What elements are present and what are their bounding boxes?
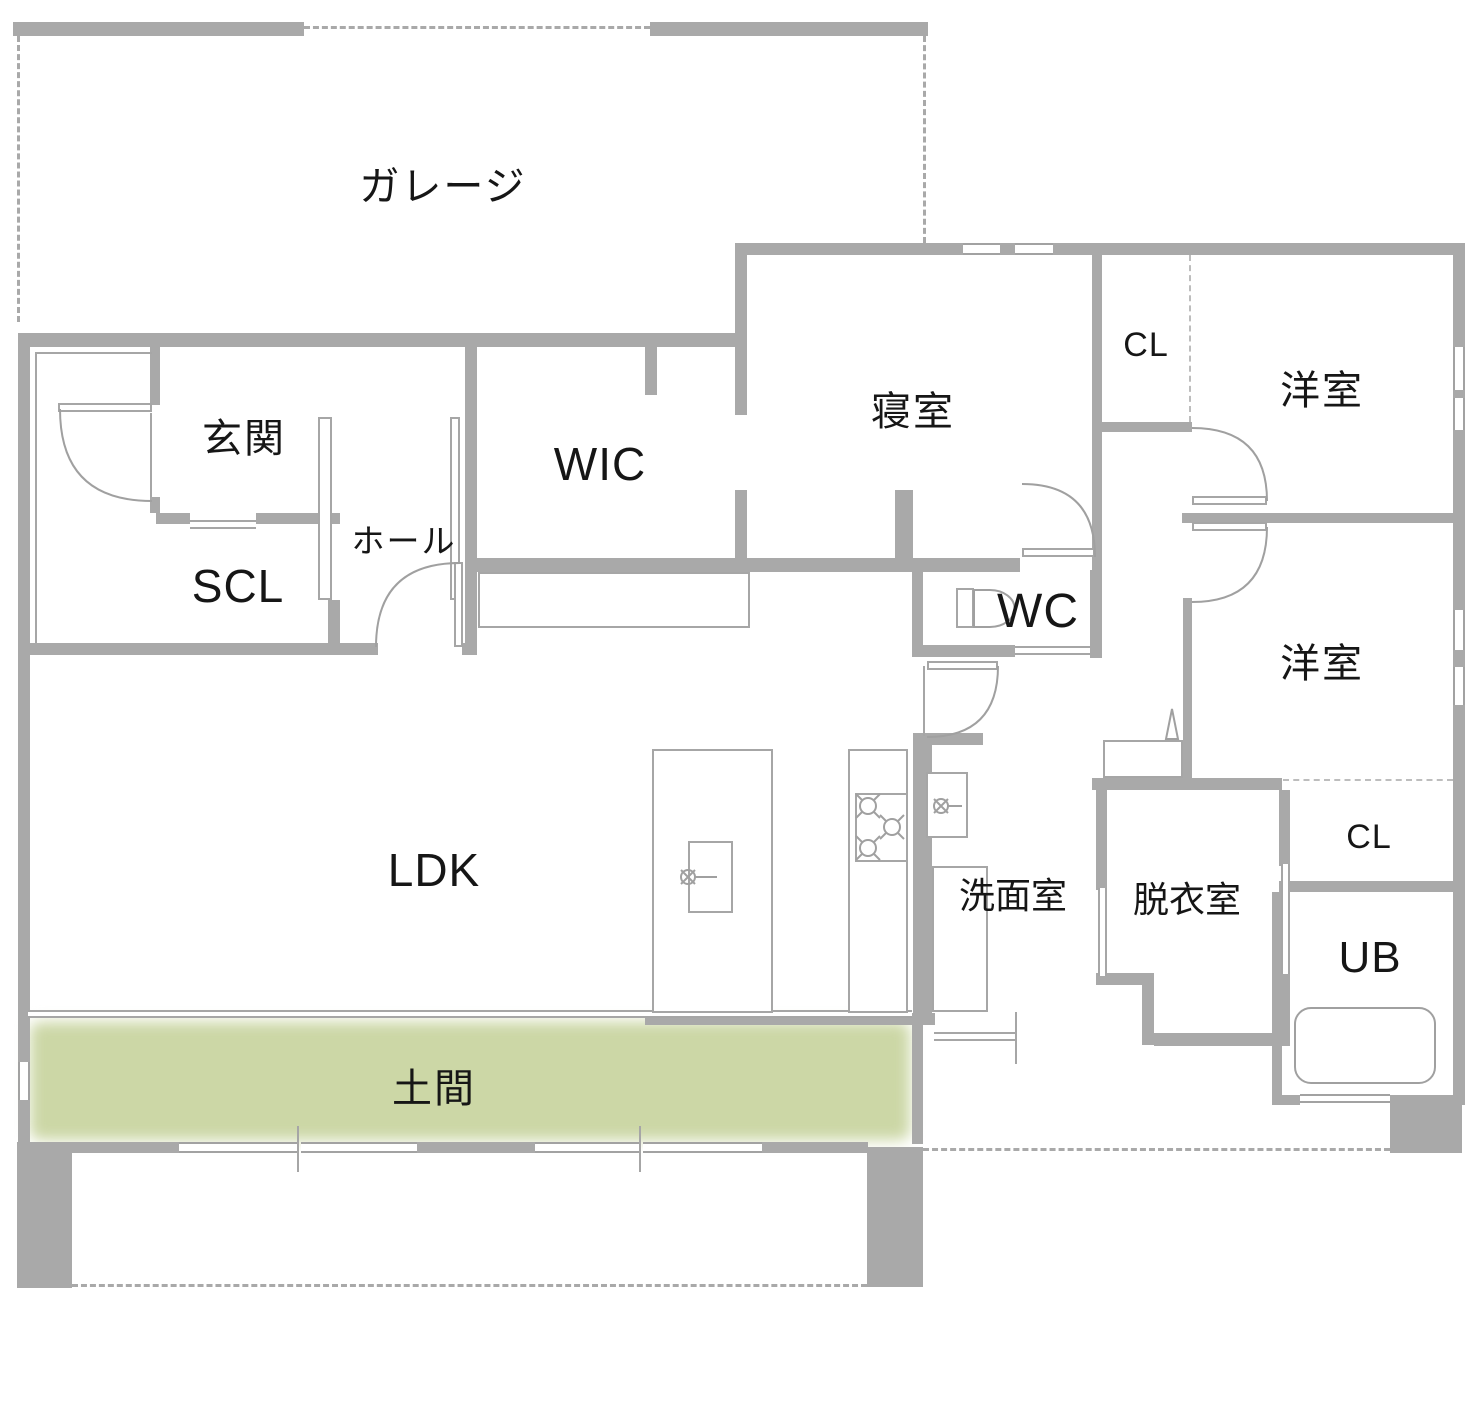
ldk-doma-opening-line: [28, 1010, 912, 1018]
wall: [735, 255, 747, 415]
toilet-tank: [956, 588, 974, 628]
western-room-upper-door-leaf: [1192, 496, 1267, 505]
wall: [1096, 790, 1107, 890]
window: [963, 243, 1000, 255]
window-mullion: [639, 1126, 641, 1172]
wall: [735, 243, 1465, 255]
wall: [912, 1025, 923, 1144]
room-label-garage: ガレージ: [359, 167, 526, 207]
room-label-wic: WIC: [554, 441, 646, 487]
kitchen-back-counter: [478, 572, 750, 628]
wall: [1390, 1095, 1462, 1153]
wall: [156, 513, 190, 524]
sliding-door-wc: [1015, 646, 1090, 655]
wall: [1142, 985, 1154, 1045]
sliding-door-dressing: [1098, 888, 1107, 976]
room-label-western-room-middle: 洋室: [1280, 644, 1364, 684]
sliding-door-doma: [934, 1032, 1016, 1041]
door-arc-icon: [60, 409, 152, 501]
symbols-layer: [0, 0, 1476, 1417]
terrace-column: [17, 1142, 72, 1288]
window-sliding-terrace: [643, 1142, 762, 1153]
wall: [912, 645, 1015, 657]
room-label-genkan: 玄関: [202, 419, 286, 459]
wall: [18, 333, 747, 347]
window: [1015, 243, 1053, 255]
door-arc-icon: [927, 666, 998, 737]
window: [1300, 1094, 1390, 1103]
door-arc-icon: [1192, 527, 1267, 602]
room-label-ldk: LDK: [388, 847, 480, 893]
wall: [645, 347, 657, 395]
wall: [895, 490, 913, 572]
door-arc-icon: [1192, 428, 1267, 501]
wall: [13, 22, 304, 36]
sliding-door: [190, 520, 256, 529]
entrance-door-leaf: [58, 403, 152, 412]
room-label-bedroom: 寝室: [871, 392, 955, 432]
wall: [150, 333, 160, 405]
window-sliding-terrace: [179, 1142, 298, 1153]
window-mullion: [297, 1126, 299, 1172]
room-label-wc: WC: [997, 588, 1079, 636]
entrance-door-jamb: [150, 413, 152, 497]
window-sliding-terrace: [301, 1142, 417, 1153]
kitchen-counter: [848, 749, 908, 1013]
vanity-sink: [926, 772, 968, 838]
kitchen-sink-icon: [688, 841, 733, 913]
porch-outline: [35, 352, 152, 354]
bedroom-door-leaf: [1022, 548, 1095, 557]
porch-outline: [35, 352, 37, 643]
corridor-counter: [1103, 740, 1183, 778]
wall: [465, 347, 477, 645]
window: [1453, 610, 1465, 650]
window: [1453, 667, 1465, 705]
room-label-washroom: 洗面室: [959, 878, 1067, 914]
wall: [1279, 881, 1465, 892]
room-label-scl: SCL: [192, 563, 284, 609]
washroom-door-leaf: [927, 661, 998, 670]
sliding-door-bath: [1281, 864, 1290, 974]
stove-icon: [855, 793, 908, 862]
terrace-column: [867, 1147, 923, 1287]
wall: [1279, 790, 1290, 866]
wall: [912, 570, 923, 647]
wall: [1092, 422, 1192, 432]
floor-plan: ガレージ 玄関 WIC 寝室 CL 洋室 SCL ホール WC 洋室 LDK 洗…: [0, 0, 1476, 1417]
wall: [417, 1142, 535, 1153]
wall: [477, 558, 1020, 572]
western-room-middle-door-leaf: [1192, 522, 1267, 531]
room-label-closet-lower: CL: [1346, 820, 1391, 854]
room-label-unit-bath: UB: [1338, 936, 1401, 980]
room-label-doma: 土間: [392, 1069, 476, 1109]
wall: [1154, 1033, 1290, 1046]
room-label-western-room-upper: 洋室: [1280, 371, 1364, 411]
room-label-hall: ホール: [352, 525, 457, 558]
window: [1453, 347, 1465, 390]
wall: [1092, 255, 1102, 570]
wall: [1272, 1095, 1300, 1105]
garage-dashed-right: [923, 36, 926, 243]
wall: [72, 1142, 179, 1153]
window: [18, 1062, 30, 1100]
genkan-cabinet: [318, 417, 332, 600]
wall: [150, 497, 160, 513]
room-label-dressing-room: 脱衣室: [1133, 882, 1241, 918]
bathtub-icon: [1295, 1008, 1435, 1083]
window-sliding-terrace: [535, 1142, 639, 1153]
door-jamb: [923, 666, 925, 736]
closet-upper-dashed: [1189, 255, 1191, 422]
house-dashed-bottom-right: [923, 1148, 1390, 1151]
wall: [1092, 778, 1282, 790]
hall-door-leaf: [454, 562, 463, 647]
wall: [650, 22, 928, 36]
garage-dashed-top: [304, 26, 650, 29]
terrace-dashed-outline: [72, 1284, 867, 1287]
closet-lower-dashed: [1283, 779, 1453, 781]
wall: [328, 600, 340, 645]
window: [1453, 398, 1465, 430]
door-arc-icon: [1022, 484, 1095, 557]
wall: [462, 643, 477, 655]
wall: [18, 347, 30, 1143]
door-arc-icon: [376, 563, 460, 647]
room-label-closet-upper: CL: [1123, 328, 1168, 362]
wall: [762, 1142, 868, 1153]
garage-dashed-left: [17, 36, 20, 322]
door-mullion: [1015, 1012, 1017, 1064]
step-marker-icon: [1166, 709, 1178, 739]
wall: [1090, 570, 1102, 658]
wall: [1183, 598, 1192, 778]
wall: [18, 643, 378, 655]
